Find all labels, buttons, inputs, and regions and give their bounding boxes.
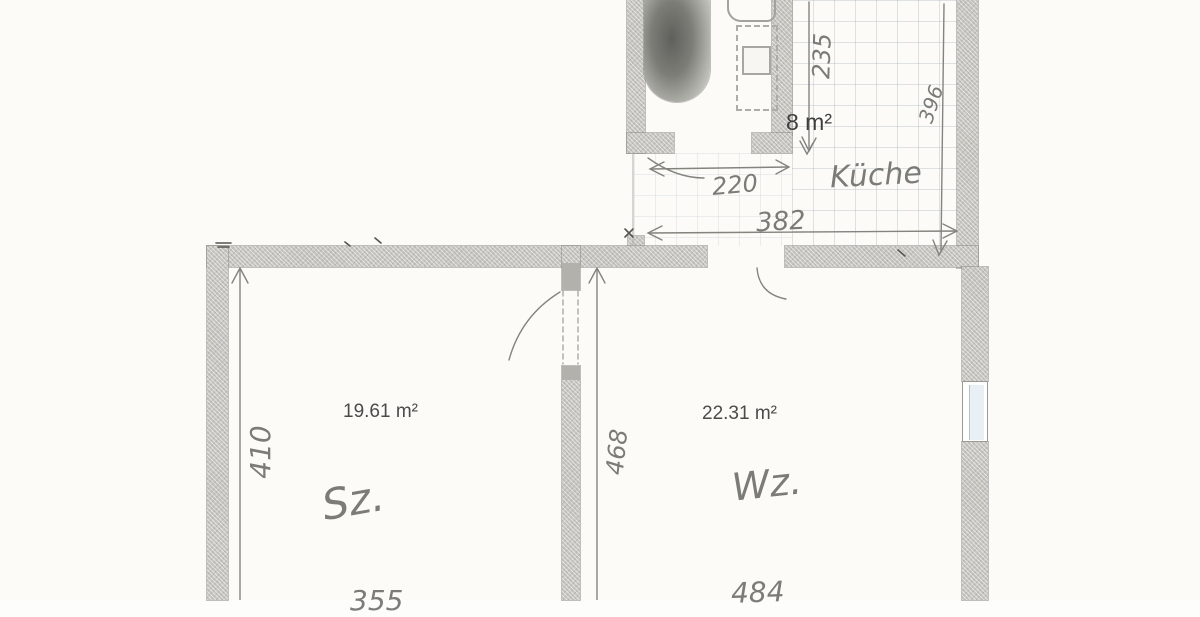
dim-label-468: 468: [584, 419, 650, 485]
livingroom-name-label: Wz.: [730, 458, 804, 509]
wall-bath-bottom-right: [752, 133, 792, 153]
bedroom-area-label: 19.61 m²: [343, 401, 418, 423]
dim-label-410: 410: [230, 422, 290, 482]
bedroom-name-label: Sz.: [318, 471, 388, 530]
door-arc-kitchen-living: [757, 268, 786, 299]
dim-label-220: 220: [711, 169, 759, 201]
arrow-410-top: [232, 268, 248, 283]
window-pane: [969, 385, 984, 440]
kitchen-name-label: Küche: [829, 156, 923, 196]
wall-main-right-segment: [785, 246, 978, 267]
window-right-wall: [962, 381, 988, 442]
door-arc-middle: [509, 292, 560, 360]
door-jamb-upper: [562, 263, 580, 290]
dim-label-355: 355: [350, 584, 403, 617]
wall-right-upper: [962, 267, 988, 381]
wall-main-left-segment: [207, 246, 707, 267]
door-jamb-lower: [562, 366, 580, 380]
wall-kitchen-right: [957, 0, 978, 268]
toilet-fixture-box: [742, 46, 771, 75]
dimension-annotations: [0, 0, 1200, 600]
bathtub: [644, 0, 710, 102]
dim-label-484: 484: [730, 575, 785, 610]
wall-middle-lower: [562, 366, 580, 600]
dim-label-382: 382: [755, 206, 806, 239]
livingroom-area-label: 22.31 m²: [702, 403, 777, 425]
arrow-468-top: [589, 268, 605, 283]
dim-label-235: 235: [793, 27, 851, 85]
bathroom-area-label: 8 m²: [786, 109, 832, 136]
wall-lower-left: [207, 246, 228, 600]
wall-bath-bottom-left: [627, 133, 674, 153]
scan-tick-1: [375, 238, 381, 243]
sink: [727, 0, 776, 22]
wall-bath-left: [627, 0, 645, 153]
wall-right-lower: [962, 442, 988, 600]
floorplan-scan: 8 m² 19.61 m² 22.31 m² Küche Sz. Wz. 220…: [0, 0, 1200, 600]
